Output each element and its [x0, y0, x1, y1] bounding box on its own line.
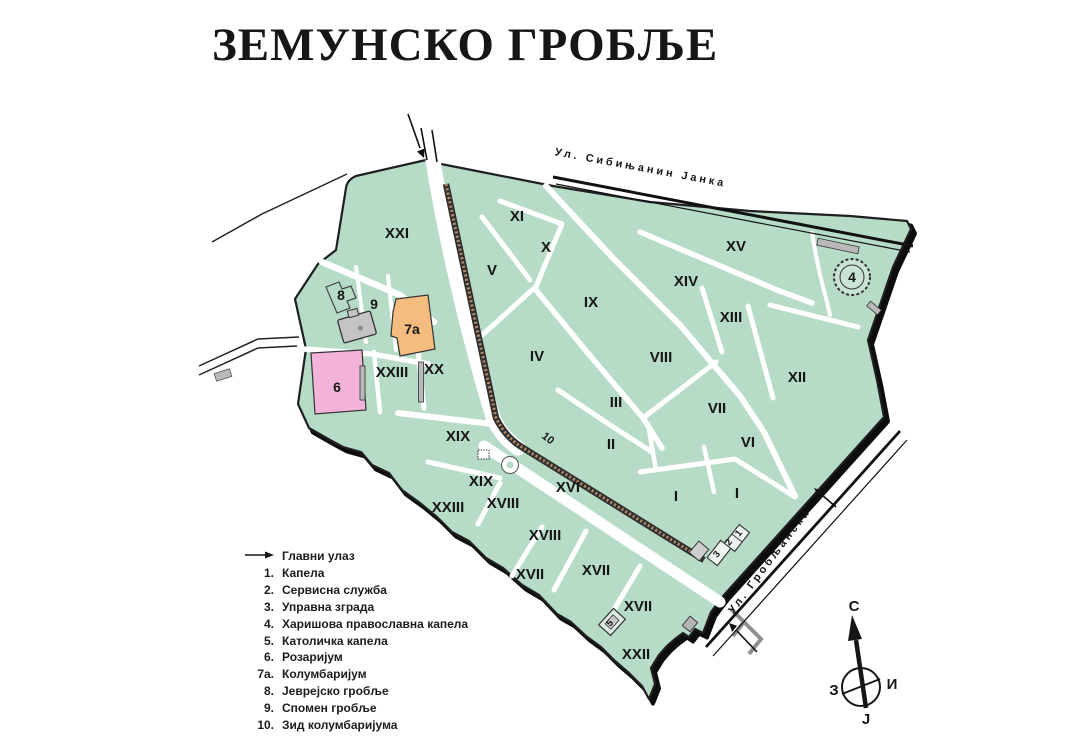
legend-item: 1. Капела: [244, 565, 468, 582]
section-label-xiv: XIV: [674, 273, 698, 290]
legend-item: 8. Јеврејско гробље: [244, 683, 468, 700]
section-label-vii: VII: [708, 400, 726, 417]
cemetery-map: XXI XI X V IX XV XIV XIII VIII IV XII II…: [0, 0, 1080, 751]
compass-south-label: Ј: [862, 711, 870, 728]
area-label-8: 8: [337, 287, 345, 303]
compass-east-label: И: [887, 676, 898, 693]
legend-item: 4. Харишова православна капела: [244, 616, 468, 633]
section-label-xviii: XVIII: [487, 495, 520, 512]
section-label-xxiii-2: XXIII: [432, 499, 465, 516]
zemun-cemetery-map-page: ЗЕМУНСКО ГРОБЉЕ: [0, 0, 1080, 751]
legend-item: 5. Католичка капела: [244, 633, 468, 650]
section-label-xv: XV: [726, 238, 746, 255]
legend-item: 10. Зид колумбаријума: [244, 717, 468, 734]
section-label-xix: XIX: [446, 428, 470, 445]
section-label-xxiii: XXIII: [376, 364, 409, 381]
section-label-iv: IV: [530, 348, 544, 365]
compass-west-label: З: [829, 682, 838, 699]
section-label-x: X: [541, 239, 551, 256]
legend-row-entrance: Главни улаз: [244, 548, 468, 565]
section-label-xvii-3: XVII: [624, 598, 652, 615]
main-entrance-arrow-icon: [244, 548, 274, 565]
section-label-vi: VI: [741, 434, 755, 451]
compass-north-label: С: [849, 598, 860, 615]
legend-item: 3. Управна зграда: [244, 599, 468, 616]
section-label-xix-2: XIX: [469, 473, 493, 490]
legend-item: 6. Розаријум: [244, 649, 468, 666]
section-label-xvii-2: XVII: [582, 562, 610, 579]
section-label-v: V: [487, 262, 497, 279]
section-label-xviii-2: XVIII: [529, 527, 562, 544]
area-label-7a: 7а: [404, 321, 420, 337]
section-label-xvi: XVI: [556, 479, 580, 496]
legend-item: 9. Спомен гробље: [244, 700, 468, 717]
section-label-ii: II: [607, 436, 615, 453]
section-label-viii: VIII: [650, 349, 673, 366]
section-label-i-2: I: [735, 485, 739, 502]
section-label-i: I: [674, 488, 678, 505]
legend-item: 7а. Колумбаријум: [244, 666, 468, 683]
area-label-4: 4: [848, 269, 856, 285]
legend: Главни улаз 1. Капела 2. Сервисна служба…: [244, 548, 468, 734]
section-label-xvii: XVII: [516, 566, 544, 583]
section-label-xx: XX: [424, 361, 444, 378]
legend-item: 2. Сервисна служба: [244, 582, 468, 599]
compass-rose: С З И Ј: [829, 598, 897, 728]
section-label-iii: III: [610, 394, 623, 411]
area-label-9: 9: [370, 296, 378, 312]
area-label-6: 6: [333, 379, 341, 395]
section-label-xi: XI: [510, 208, 524, 225]
section-label-xxi: XXI: [385, 225, 409, 242]
section-label-xxii: XXII: [622, 646, 650, 663]
section-label-ix: IX: [584, 294, 598, 311]
legend-entrance-label: Главни улаз: [282, 548, 355, 565]
section-label-xiii: XIII: [720, 309, 743, 326]
section-label-xii: XII: [788, 369, 806, 386]
